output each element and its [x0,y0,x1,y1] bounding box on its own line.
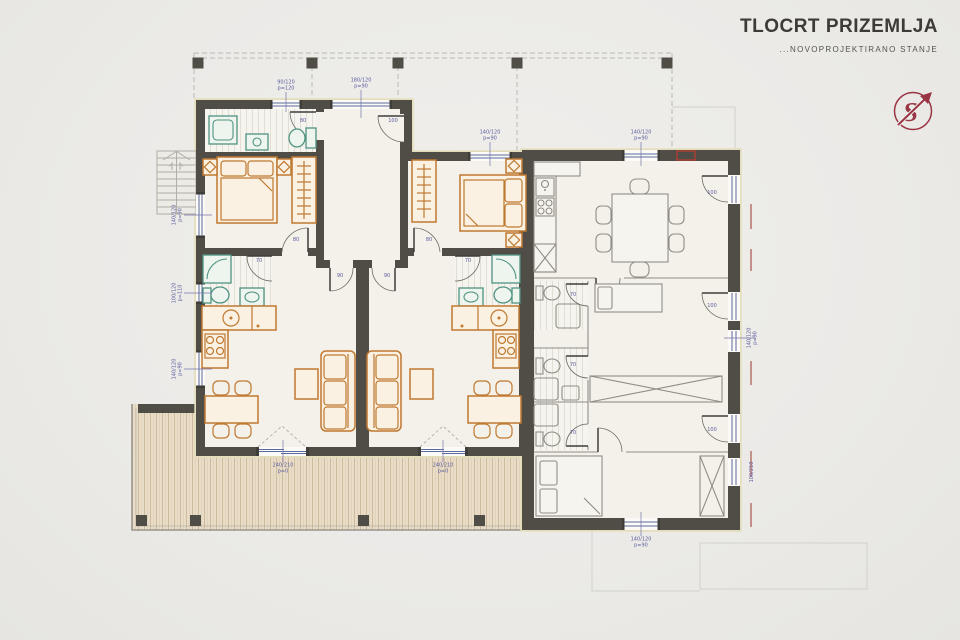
page-title: TLOCRT PRIZEMLJA [740,16,938,38]
drawing-header: TLOCRT PRIZEMLJA ...NOVOPROJEKTIRANO STA… [740,16,938,54]
coffee-table [410,369,433,399]
nightstand [203,159,217,175]
window [728,175,740,204]
floor-plan-area [0,0,960,640]
window [728,292,740,321]
window [728,458,740,486]
blueprint-page: TLOCRT PRIZEMLJA ...NOVOPROJEKTIRANO STA… [0,0,960,640]
double-bed [217,157,277,223]
nightstand [506,159,522,173]
canopy-posts [193,58,673,69]
nightstand [277,159,291,175]
nightstand [506,233,522,247]
double-bed [460,175,526,231]
window [728,330,740,352]
double-bed-existing [536,456,602,516]
floor-plan-svg [0,0,960,640]
coffee-table [295,369,318,399]
wardrobe [412,160,436,222]
deck-parapet [138,404,196,413]
studio-logo: S [889,87,937,135]
sofa [367,351,401,431]
exterior-stairs [157,151,196,214]
window [728,414,740,443]
wardrobe [292,157,316,223]
sofa [321,351,355,431]
page-subtitle: ...NOVOPROJEKTIRANO STANJE [740,45,938,54]
single-bed [595,284,662,312]
